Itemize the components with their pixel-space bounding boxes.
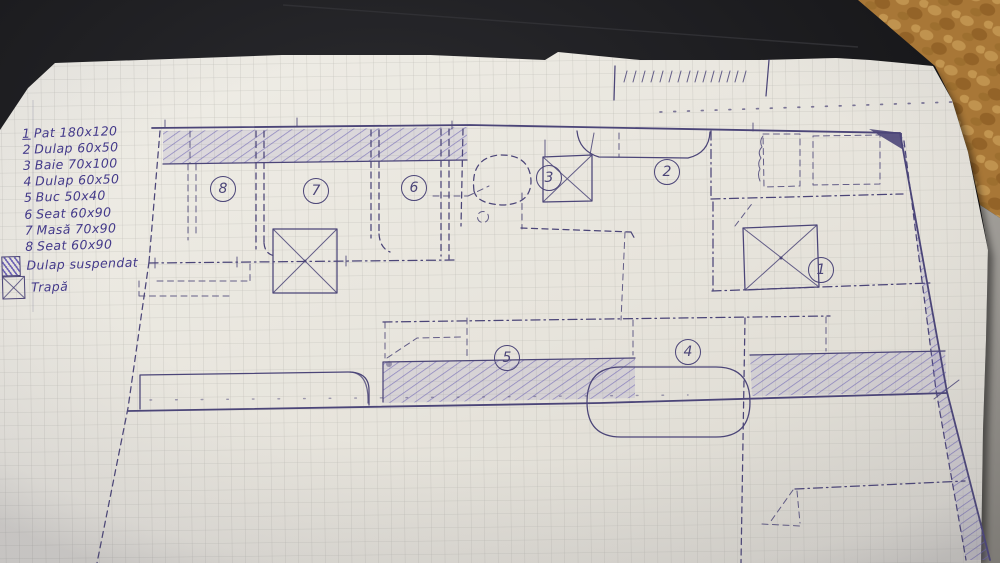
plan-marker-5: 5 [494,345,520,371]
plan-marker-6: 6 [401,175,427,201]
plan-marker-8: 8 [210,176,236,202]
photo-of-floorplan: 1Pat 180x120 2Dulap 60x50 3Baie 70x100 4… [0,0,1000,563]
plan-marker-3: 3 [536,165,562,191]
plan-marker-7: 7 [303,178,329,204]
plan-marker-2: 2 [654,159,680,185]
plan-marker-1: 1 [808,257,834,283]
plan-markers: 12345678 [0,0,1000,563]
plan-marker-4: 4 [675,339,701,365]
